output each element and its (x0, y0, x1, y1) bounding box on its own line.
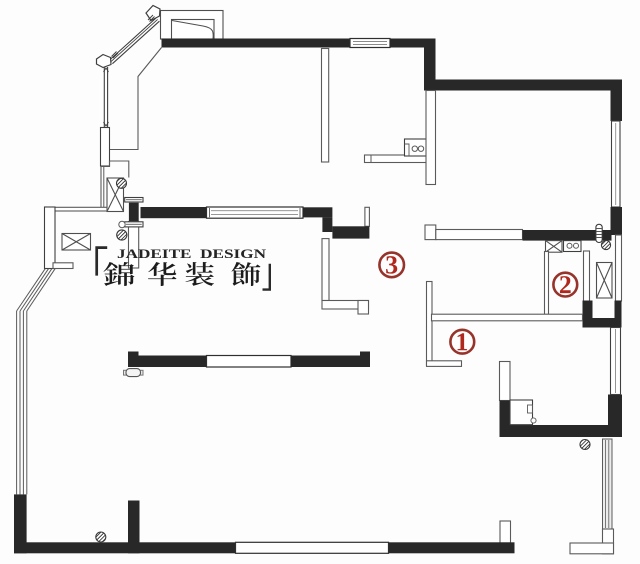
svg-text:JADEITE DESIGN: JADEITE DESIGN (117, 247, 266, 261)
